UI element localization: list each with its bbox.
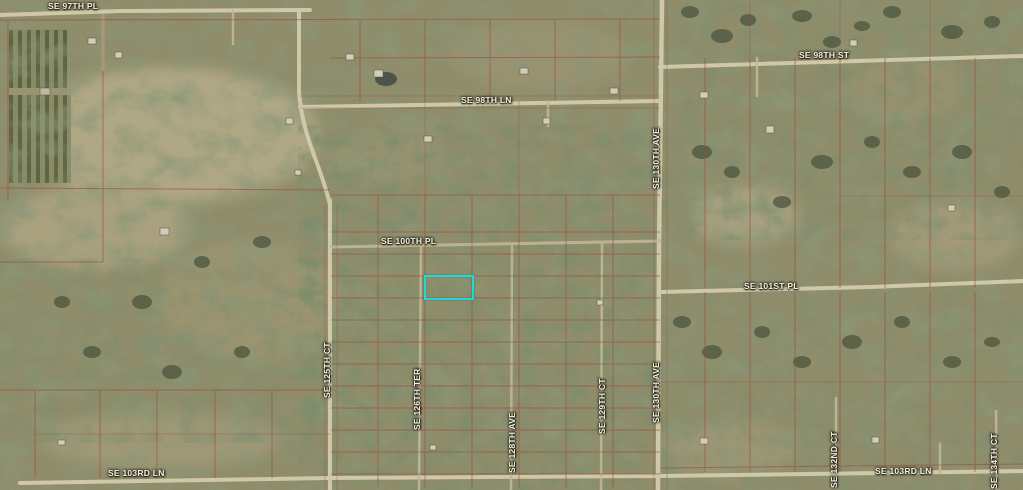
- selected-parcel-highlight: [424, 275, 474, 300]
- grain-overlay: [0, 0, 1023, 490]
- satellite-imagery: [0, 0, 1023, 490]
- satellite-map[interactable]: SE 97TH PL SE 98TH ST SE 98TH LN SE 100T…: [0, 0, 1023, 490]
